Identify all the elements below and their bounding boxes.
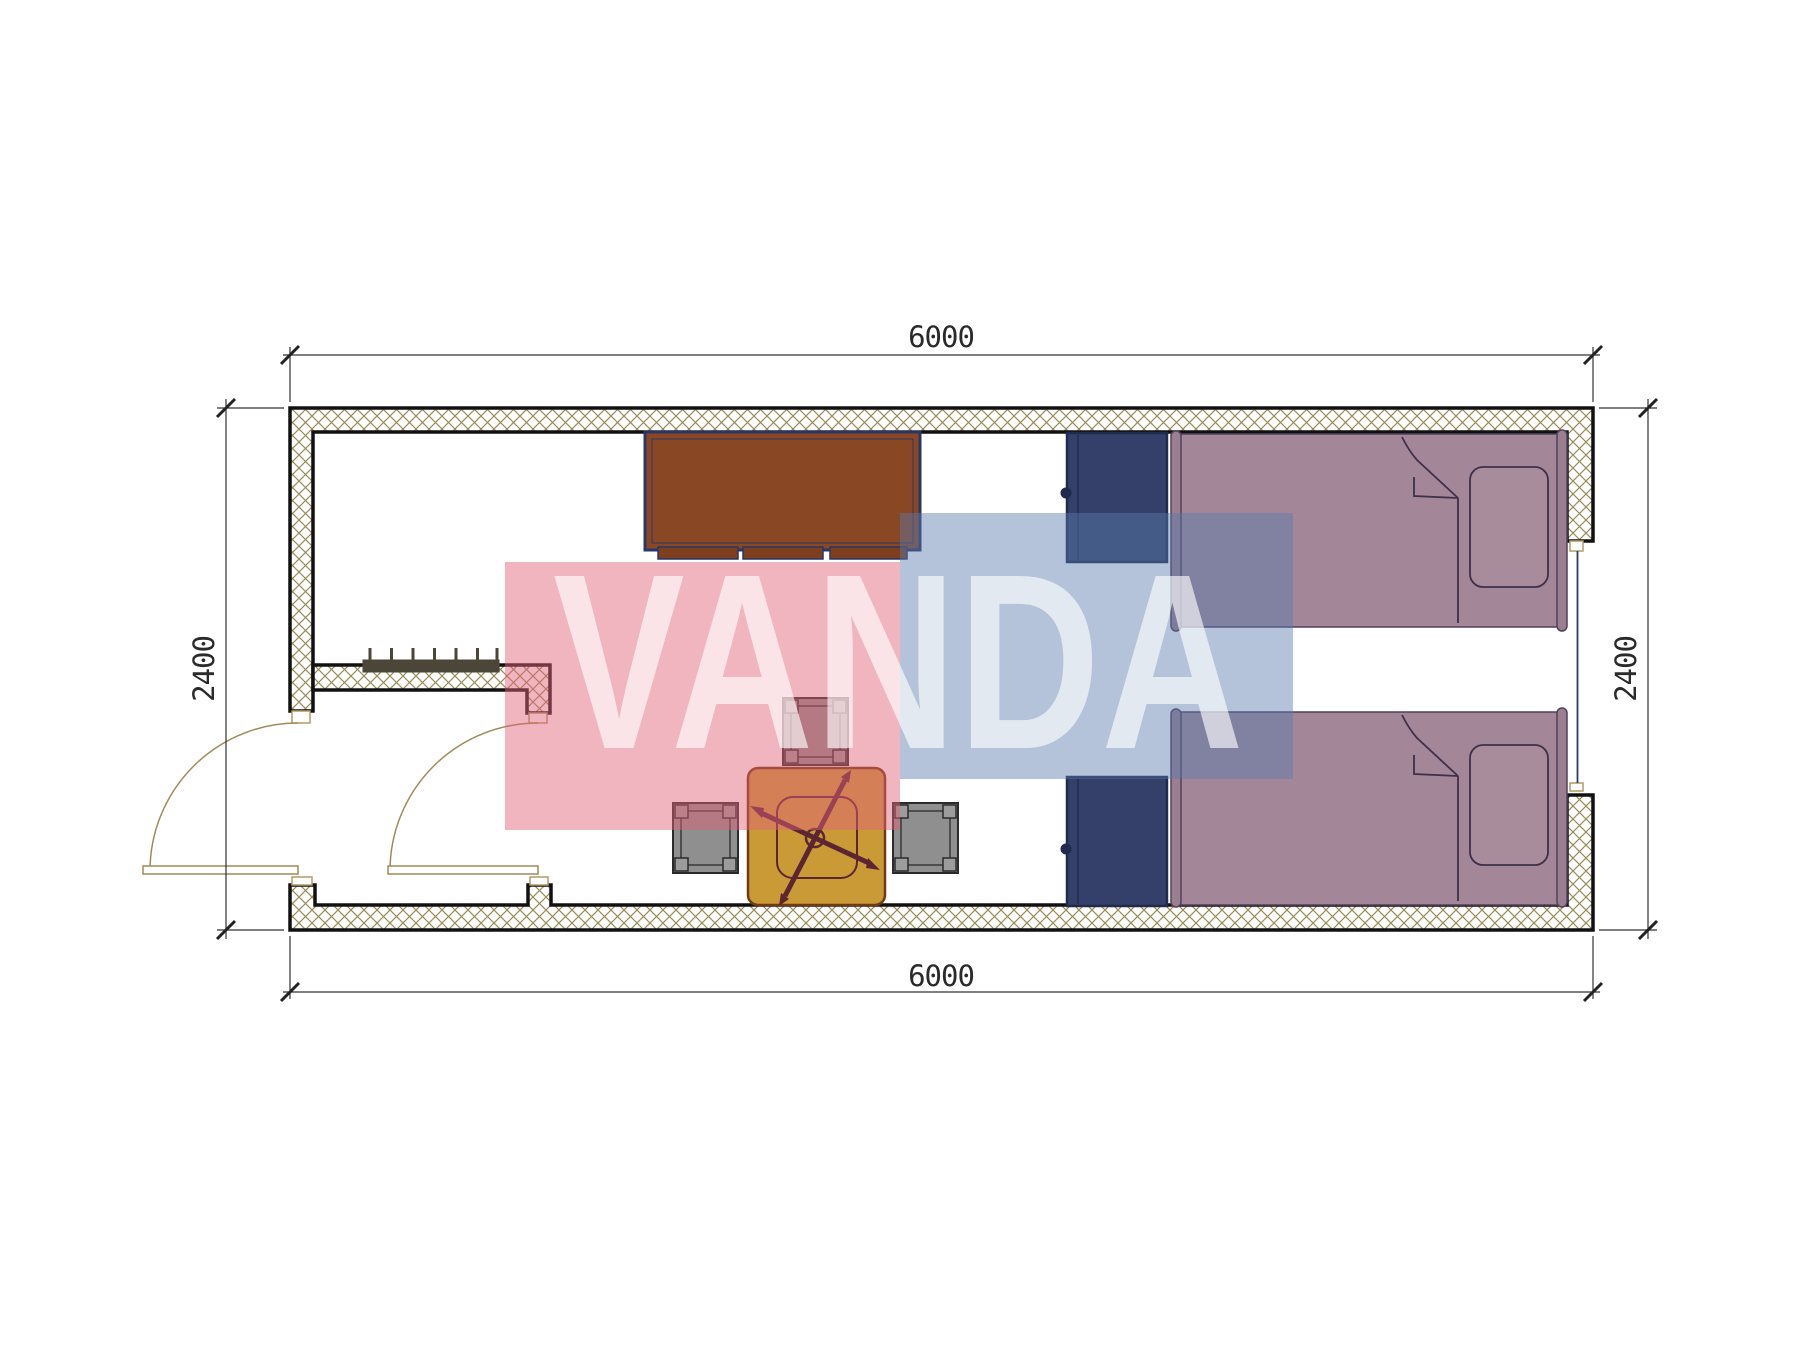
dim-label-left: 2400 — [187, 636, 221, 702]
dim-label-bottom: 6000 — [908, 959, 974, 993]
bed-pillow — [1470, 467, 1548, 587]
radiator — [363, 648, 499, 672]
bed-footboard — [1557, 708, 1567, 907]
dim-label-right: 2400 — [1609, 636, 1643, 702]
stool-east — [893, 803, 958, 873]
bed-footboard — [1557, 430, 1567, 631]
jamb-left-wall-top — [292, 711, 310, 723]
watermark-text: VANDA — [553, 537, 1245, 787]
jamb-bottom-pier — [530, 877, 548, 885]
jamb-window-top — [1570, 541, 1583, 551]
entry-door-leaf — [143, 866, 298, 874]
jamb-left-wall-bottom — [292, 877, 312, 885]
floor-plan-sheet: 6000 6000 2400 2400 VANDA — [0, 0, 1800, 1350]
bed-pillow — [1470, 745, 1548, 865]
nightstand-knob — [1061, 844, 1072, 855]
entry-door — [143, 723, 298, 874]
interior-door-leaf — [388, 866, 538, 874]
jamb-window-bottom — [1570, 783, 1583, 791]
dim-label-top: 6000 — [908, 320, 974, 354]
entry-door-arc — [150, 723, 298, 871]
nightstand-knob — [1061, 488, 1072, 499]
